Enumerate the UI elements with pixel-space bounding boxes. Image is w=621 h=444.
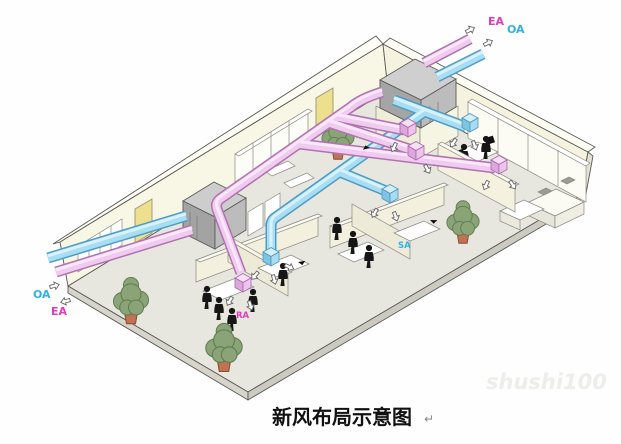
label-ra: RA	[236, 311, 250, 321]
figure-caption: 新风布局示意图	[272, 405, 412, 429]
label-oa-top: OA	[507, 23, 525, 36]
paragraph-mark: ↵	[424, 412, 434, 426]
outdoor-in-arrow	[482, 37, 494, 48]
supply-diffuser	[382, 185, 398, 204]
supply-diffuser	[462, 114, 478, 133]
exhaust-diffuser	[408, 142, 424, 161]
watermark: shushi100	[486, 370, 607, 394]
hvac-isometric-diagram: EA OA OA EA SA RA shushi100 新风布局示意图 ↵	[0, 0, 621, 444]
outdoor-in-arrow	[49, 281, 60, 291]
label-ea-top: EA	[488, 15, 505, 28]
supply-diffuser	[263, 248, 279, 267]
exhaust-diffuser	[400, 119, 416, 138]
exhaust-out-arrow	[464, 24, 476, 35]
exhaust-diffuser	[491, 156, 507, 175]
label-oa-left: OA	[33, 288, 51, 301]
diagram-page: EA OA OA EA SA RA shushi100 新风布局示意图 ↵	[0, 0, 621, 444]
label-sa: SA	[398, 241, 411, 251]
label-ea-left: EA	[51, 305, 68, 318]
exhaust-diffuser	[235, 274, 251, 293]
